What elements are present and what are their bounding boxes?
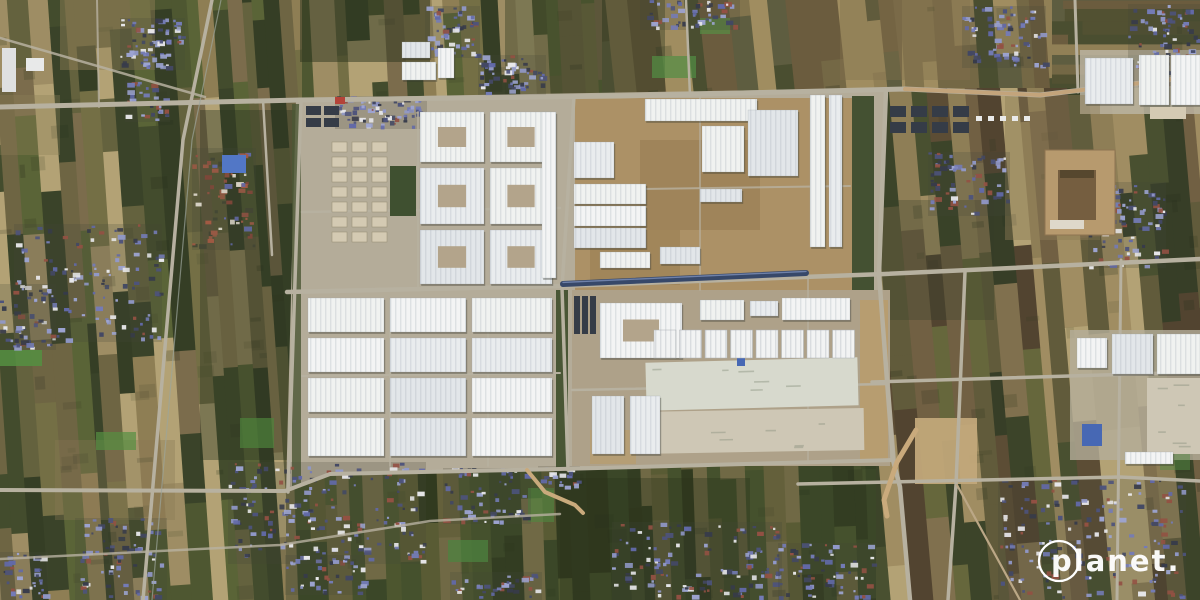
satellite-view: planet.	[0, 0, 1200, 600]
satellite-image: planet.	[0, 0, 1200, 600]
planet-logo-text: planet.	[1051, 544, 1180, 578]
overlays-layer	[0, 0, 1200, 600]
planet-watermark: planet.	[1039, 541, 1180, 581]
